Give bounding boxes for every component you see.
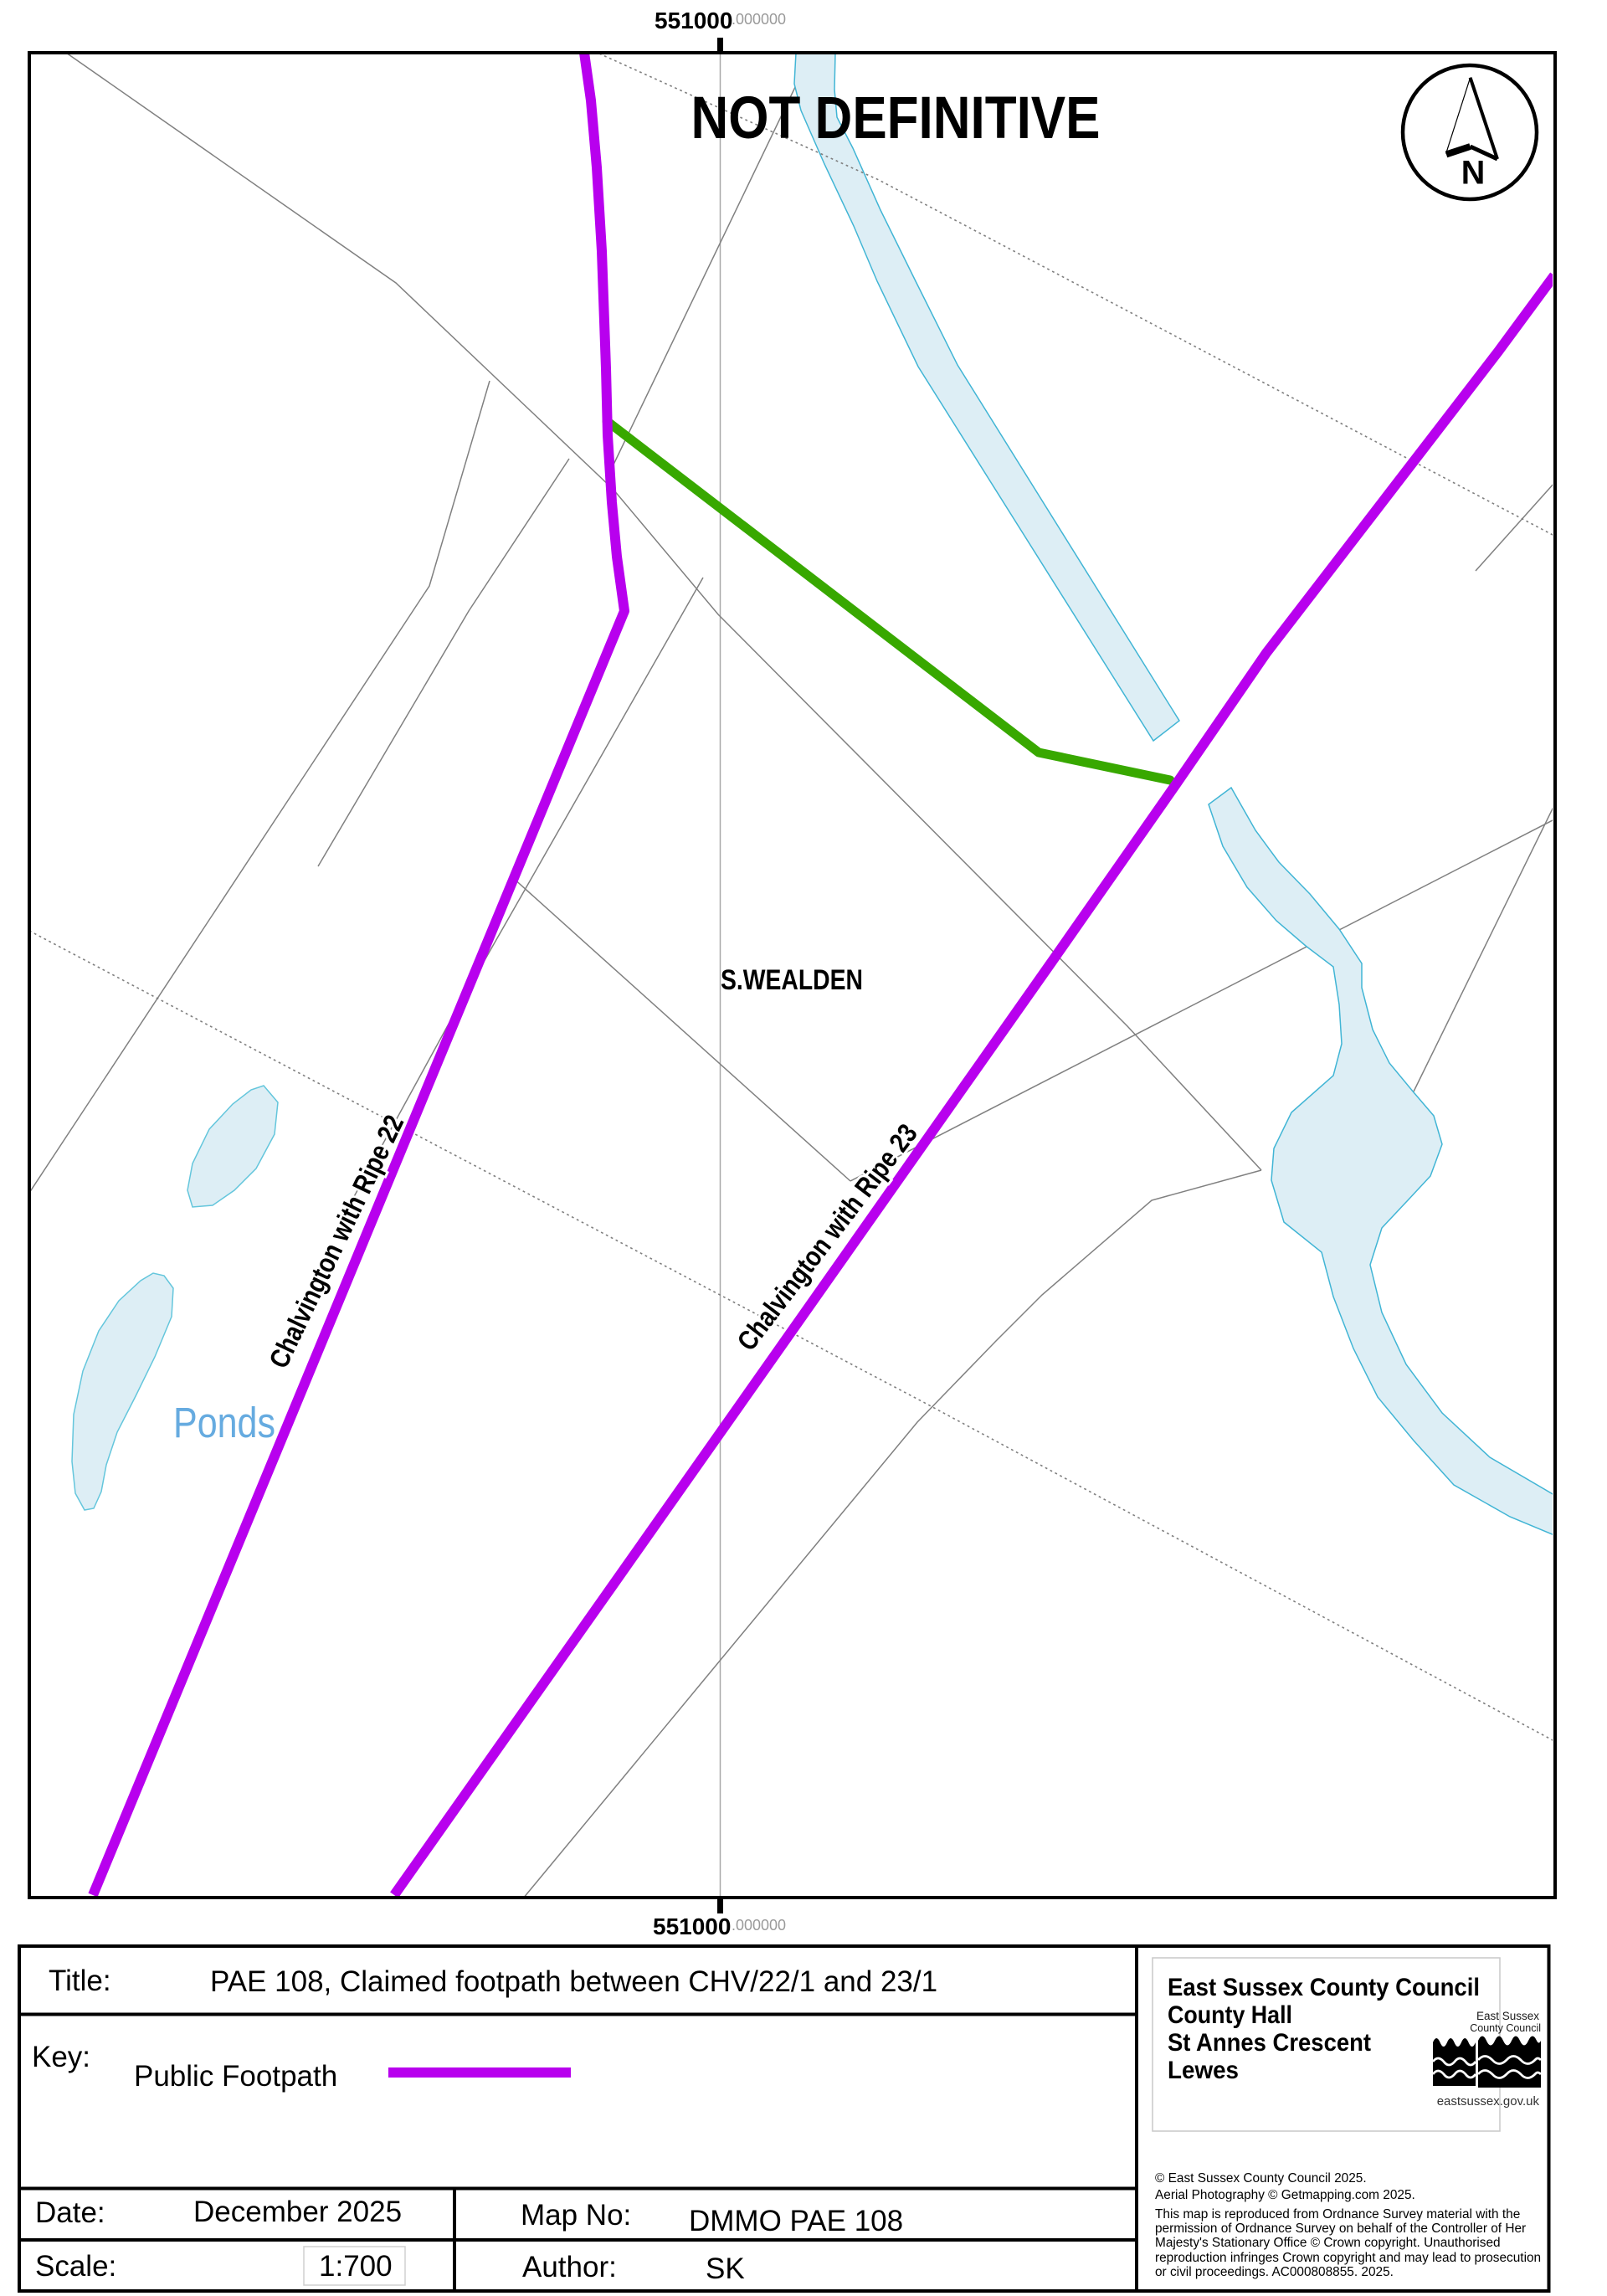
svg-text:Public Footpath: Public Footpath xyxy=(134,2060,337,2093)
svg-text:or civil proceedings. AC000808: or civil proceedings. AC000808855. 2025. xyxy=(1155,2265,1394,2279)
svg-text:Aerial Photography © Getmappin: Aerial Photography © Getmapping.com 2025… xyxy=(1155,2188,1415,2202)
svg-text:Author:: Author: xyxy=(522,2251,617,2283)
svg-text:© East Sussex County Council 2: © East Sussex County Council 2025. xyxy=(1155,2171,1367,2186)
svg-text:This map is reproduced from Or: This map is reproduced from Ordnance Sur… xyxy=(1155,2207,1520,2222)
svg-text:East Sussex County Council: East Sussex County Council xyxy=(1168,1974,1480,2001)
svg-text:NOT DEFINITIVE: NOT DEFINITIVE xyxy=(691,85,1101,152)
svg-text:Scale:: Scale: xyxy=(35,2250,116,2283)
svg-text:County Hall: County Hall xyxy=(1168,2001,1292,2029)
svg-text:N: N xyxy=(1461,155,1486,192)
svg-text:Lewes: Lewes xyxy=(1168,2057,1239,2084)
svg-text:.000000: .000000 xyxy=(732,11,786,28)
svg-text:Key:: Key: xyxy=(32,2041,90,2073)
svg-text:SK: SK xyxy=(706,2252,745,2285)
svg-text:permission of Ordnance Survey: permission of Ordnance Survey on behalf … xyxy=(1155,2222,1526,2236)
svg-text:1:700: 1:700 xyxy=(319,2250,393,2283)
svg-text:County Council: County Council xyxy=(1470,2022,1541,2034)
svg-text:551000: 551000 xyxy=(653,1913,731,1939)
svg-text:.000000: .000000 xyxy=(732,1917,786,1934)
svg-text:S.WEALDEN: S.WEALDEN xyxy=(721,964,863,996)
svg-text:Majesty's Stationary Office ©: Majesty's Stationary Office © Crown copy… xyxy=(1155,2236,1501,2250)
svg-text:551000: 551000 xyxy=(655,8,732,33)
svg-text:DMMO PAE 108: DMMO PAE 108 xyxy=(689,2205,903,2237)
svg-text:December 2025: December 2025 xyxy=(193,2196,402,2228)
svg-text:Map No:: Map No: xyxy=(521,2199,631,2232)
svg-text:PAE 108, Claimed footpath betw: PAE 108, Claimed footpath between CHV/22… xyxy=(210,1965,937,1998)
svg-text:Date:: Date: xyxy=(35,2196,105,2229)
svg-text:East Sussex: East Sussex xyxy=(1476,2010,1539,2022)
svg-text:Title:: Title: xyxy=(49,1965,111,1997)
svg-text:eastsussex.gov.uk: eastsussex.gov.uk xyxy=(1437,2094,1540,2109)
svg-text:reproduction infringes Crown c: reproduction infringes Crown copyright a… xyxy=(1155,2251,1541,2265)
svg-text:Ponds: Ponds xyxy=(173,1399,275,1446)
svg-text:St Annes Crescent: St Annes Crescent xyxy=(1168,2029,1371,2057)
